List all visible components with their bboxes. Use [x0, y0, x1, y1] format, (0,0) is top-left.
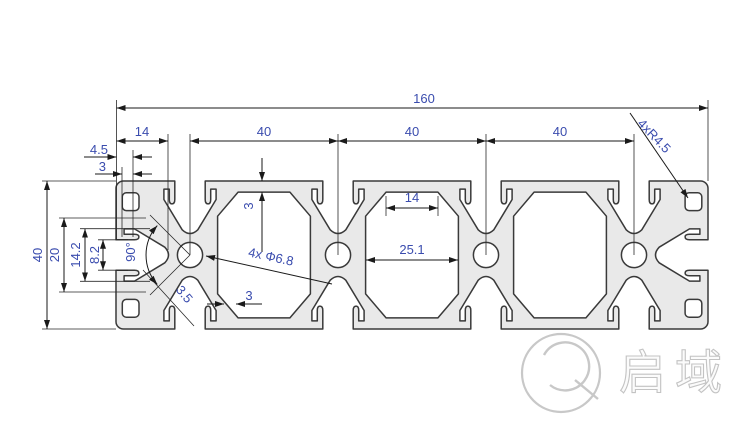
dim-pitch-3: 40	[553, 124, 567, 139]
end-corner-cavity	[685, 193, 702, 211]
dim-height: 40	[30, 248, 45, 262]
dim-slot-cavity: 14.2	[68, 242, 83, 267]
dim-cavity-width: 25.1	[399, 242, 424, 257]
end-corner-cavity	[685, 299, 702, 317]
dim-slot-opening: 8.2	[87, 246, 102, 264]
dim-end-lip: 3	[99, 159, 106, 174]
logo-q-tail-icon	[575, 380, 598, 399]
dim-end-offset: 14	[135, 124, 149, 139]
octagonal-cavity	[514, 192, 607, 318]
dim-cavity-top: 14	[405, 190, 419, 205]
dim-bottom-wall: 3	[245, 288, 252, 303]
dim-top-wall: 3	[241, 202, 256, 209]
dim-pitch-2: 40	[405, 124, 419, 139]
logo-brand-text: 启域	[619, 346, 731, 399]
dim-end-wall: 4.5	[90, 142, 108, 157]
dim-web-angle: 90°	[123, 242, 138, 262]
end-corner-cavity	[122, 299, 139, 317]
dim-slot-span: 20	[47, 248, 62, 262]
brand-logo: 启域	[522, 334, 731, 412]
logo-q-swirl-icon	[544, 342, 589, 390]
end-corner-cavity	[122, 193, 139, 211]
dim-overall-width: 160	[413, 91, 435, 106]
dim-corner-radius: 4xR4.5	[635, 116, 674, 156]
extrusion-drawing: 160 14 40 40 40 4xR4.5 4.5 3 40 20 14.2 …	[0, 0, 751, 428]
drawing-canvas: 160 14 40 40 40 4xR4.5 4.5 3 40 20 14.2 …	[0, 0, 751, 428]
dim-pitch-1: 40	[257, 124, 271, 139]
